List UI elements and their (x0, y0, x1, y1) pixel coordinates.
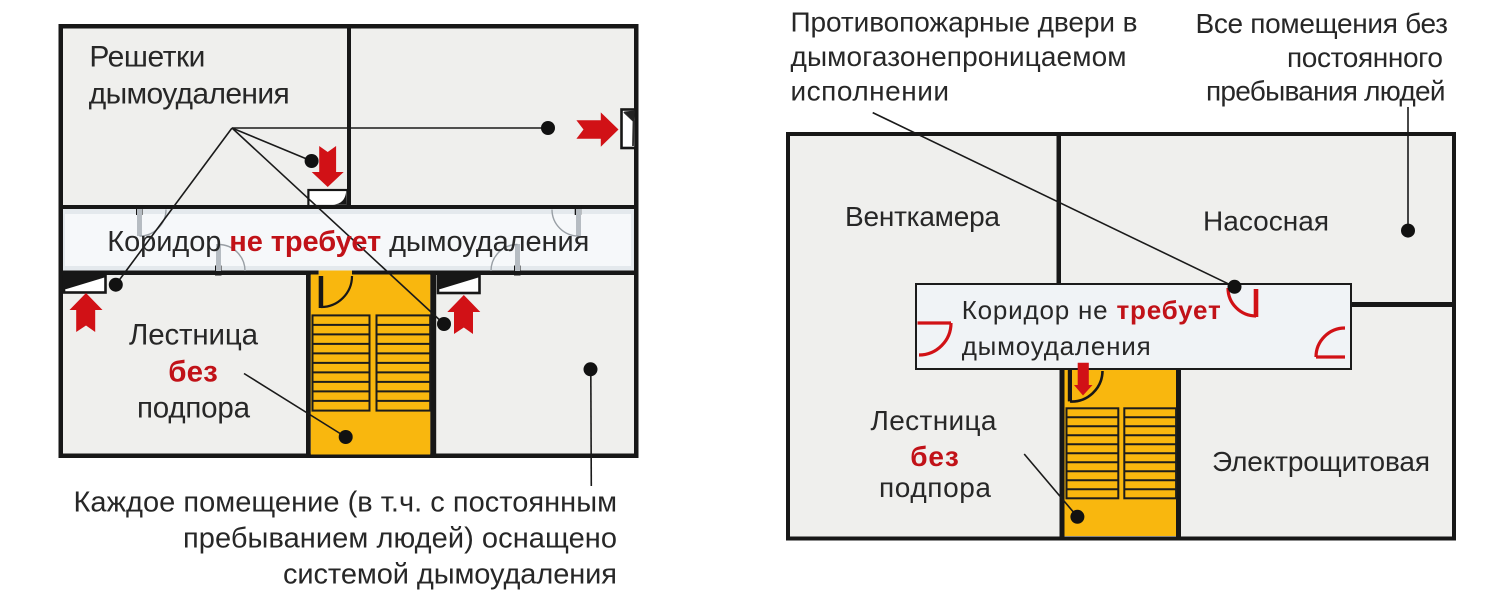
svg-text:Решетки: Решетки (89, 41, 205, 74)
svg-text:системой дымоудаления: системой дымоудаления (283, 559, 617, 591)
svg-text:исполнении: исполнении (791, 76, 950, 107)
svg-text:пребыванием людей) оснащено: пребыванием людей) оснащено (183, 523, 617, 555)
svg-text:дымоудаления: дымоудаления (89, 77, 290, 110)
svg-text:дымогазонепроницаемом: дымогазонепроницаемом (791, 41, 1127, 72)
svg-text:пребывания людей: пребывания людей (1206, 76, 1446, 107)
svg-text:постоянного: постоянного (1287, 42, 1443, 73)
svg-text:без: без (168, 356, 218, 389)
svg-text:Электрощитовая: Электрощитовая (1212, 446, 1430, 477)
svg-text:Лестница: Лестница (129, 319, 259, 352)
svg-text:подпора: подпора (137, 392, 251, 425)
svg-text:Все помещения без: Все помещения без (1196, 8, 1449, 39)
svg-text:Каждое помещение (в т.ч. с пос: Каждое помещение (в т.ч. с постоянным (74, 487, 618, 519)
svg-text:Коридор не требует дымоудалени: Коридор не требует дымоудаления (107, 226, 589, 258)
svg-text:Коридор не требует: Коридор не требует (962, 295, 1221, 325)
svg-text:Лестница: Лестница (871, 405, 997, 436)
svg-text:подпора: подпора (879, 472, 991, 503)
svg-text:дымоудаления: дымоудаления (962, 331, 1151, 361)
svg-text:Венткамера: Венткамера (845, 201, 1000, 232)
svg-text:Противопожарные двери в: Противопожарные двери в (791, 7, 1138, 38)
svg-text:без: без (910, 441, 959, 472)
svg-text:Насосная: Насосная (1203, 206, 1329, 237)
